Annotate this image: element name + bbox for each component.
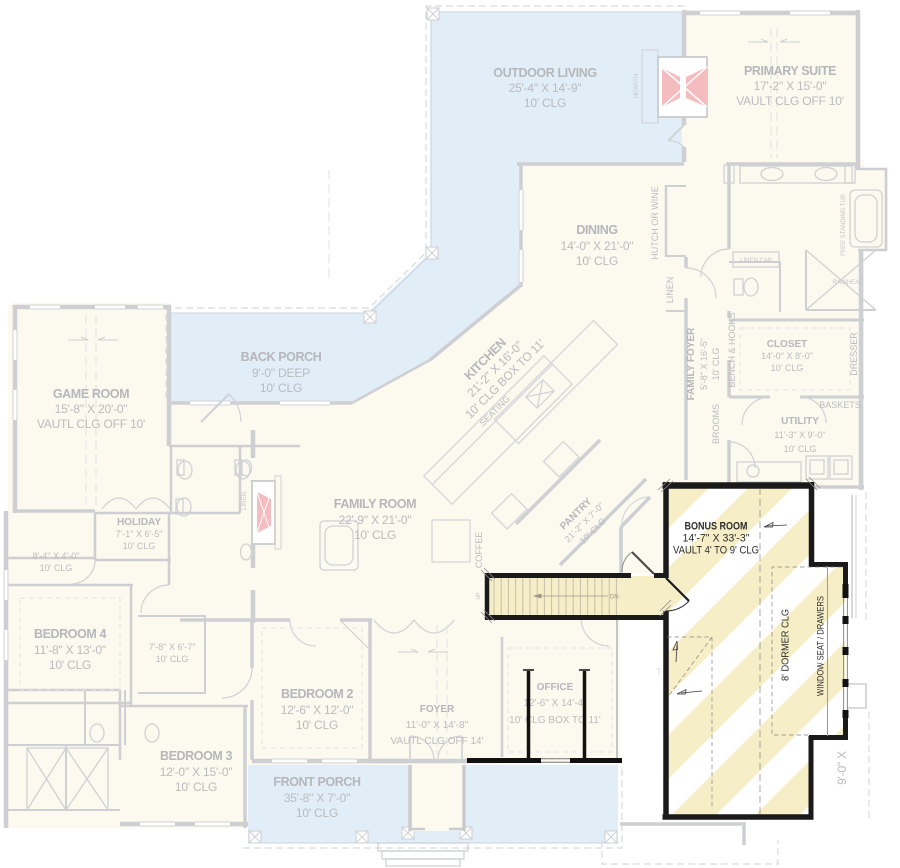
svg-text:DINING: DINING <box>576 223 617 237</box>
svg-text:8' DORMER CLG: 8' DORMER CLG <box>781 609 792 681</box>
svg-text:BROOMS: BROOMS <box>711 404 721 444</box>
svg-text:25'-4" X 14'-9": 25'-4" X 14'-9" <box>509 81 582 95</box>
svg-text:9'-0" X: 9'-0" X <box>835 751 849 785</box>
svg-text:17'-2" X 15'-0": 17'-2" X 15'-0" <box>754 79 827 93</box>
svg-text:10' CLG: 10' CLG <box>784 444 817 454</box>
svg-text:FREE STANDING TUB: FREE STANDING TUB <box>841 194 847 256</box>
svg-text:11'-8" X 13'-0": 11'-8" X 13'-0" <box>34 643 106 657</box>
svg-text:12'-6" X 14'-4": 12'-6" X 14'-4" <box>523 698 587 709</box>
svg-text:10' CLG: 10' CLG <box>296 718 338 732</box>
svg-text:BENCH & HOOKS: BENCH & HOOKS <box>727 312 737 387</box>
svg-text:10' CLG: 10' CLG <box>524 96 566 110</box>
svg-text:8'-4" X 4'-0": 8'-4" X 4'-0" <box>33 551 80 561</box>
svg-text:10' CLG: 10' CLG <box>175 780 217 794</box>
svg-text:DN: DN <box>610 595 619 601</box>
svg-text:LINEN: LINEN <box>665 277 675 304</box>
svg-text:RAINHEAD: RAINHEAD <box>832 280 864 286</box>
svg-text:T: T <box>656 667 662 677</box>
svg-text:HOLIDAY: HOLIDAY <box>117 517 161 528</box>
svg-text:10' CLG: 10' CLG <box>40 563 73 573</box>
svg-text:10' CLG: 10' CLG <box>296 806 338 820</box>
svg-text:FOYER: FOYER <box>420 704 455 715</box>
svg-text:BONUS ROOM: BONUS ROOM <box>685 521 748 533</box>
svg-text:35'-8" X 7'-0": 35'-8" X 7'-0" <box>284 791 350 805</box>
svg-text:FAMILY ROOM: FAMILY ROOM <box>334 497 416 511</box>
svg-text:VAUTL CLG OFF 10': VAUTL CLG OFF 10' <box>37 417 145 431</box>
svg-text:10' CLG: 10' CLG <box>711 348 721 381</box>
svg-text:22'-9" X 21'-0": 22'-9" X 21'-0" <box>339 513 412 527</box>
svg-text:10' CLG: 10' CLG <box>49 658 91 672</box>
svg-text:12'-6" X 12'-0": 12'-6" X 12'-0" <box>281 703 354 717</box>
svg-text:FRONT PORCH: FRONT PORCH <box>273 775 361 789</box>
svg-text:11'-0" X 14'-8": 11'-0" X 14'-8" <box>406 720 469 731</box>
svg-text:VAULT CLG OFF 10': VAULT CLG OFF 10' <box>736 94 844 108</box>
svg-text:BEDROOM 3: BEDROOM 3 <box>160 749 233 763</box>
svg-text:WINDOW SEAT / DRAWERS: WINDOW SEAT / DRAWERS <box>816 596 826 696</box>
svg-text:9'-0" DEEP: 9'-0" DEEP <box>252 366 310 380</box>
svg-text:HUTCH OR WINE: HUTCH OR WINE <box>650 186 660 260</box>
svg-text:VAULT 4' TO 9' CLG: VAULT 4' TO 9' CLG <box>673 545 759 557</box>
svg-text:BASKETS: BASKETS <box>819 400 861 410</box>
svg-text:14'-7" X 33'-3": 14'-7" X 33'-3" <box>683 533 750 545</box>
svg-text:COFFEE: COFFEE <box>474 532 484 569</box>
svg-text:10' CLG: 10' CLG <box>354 528 396 542</box>
svg-text:HEARTH: HEARTH <box>634 74 640 99</box>
svg-text:7'-8" X 6'-7": 7'-8" X 6'-7" <box>149 642 196 652</box>
svg-text:PRIMARY SUITE: PRIMARY SUITE <box>744 64 836 78</box>
svg-text:10' CLG: 10' CLG <box>156 654 189 664</box>
svg-text:OFFICE: OFFICE <box>537 682 574 693</box>
svg-text:7'-1" X 6'-5": 7'-1" X 6'-5" <box>116 529 163 539</box>
svg-text:DRESSER: DRESSER <box>849 332 859 376</box>
svg-text:14'-0" X 8'-0": 14'-0" X 8'-0" <box>761 351 813 361</box>
svg-text:10' CLG: 10' CLG <box>576 254 618 268</box>
svg-text:GAME ROOM: GAME ROOM <box>53 387 129 401</box>
svg-text:FAMILY FOYER: FAMILY FOYER <box>686 327 697 401</box>
svg-text:BEDROOM 2: BEDROOM 2 <box>281 687 354 701</box>
svg-text:LINEN CAB: LINEN CAB <box>740 258 772 264</box>
svg-text:5'-8" X 16'-5": 5'-8" X 16'-5" <box>699 338 709 390</box>
svg-text:LINEN: LINEN <box>242 492 248 510</box>
svg-text:BACK PORCH: BACK PORCH <box>241 350 322 364</box>
svg-text:10' CLG: 10' CLG <box>771 363 804 373</box>
svg-text:CLOSET: CLOSET <box>767 339 808 350</box>
svg-text:10' CLG: 10' CLG <box>260 381 302 395</box>
svg-text:11'-3" X 9'-0": 11'-3" X 9'-0" <box>774 430 825 440</box>
svg-text:VAUTL CLG OFF 14': VAUTL CLG OFF 14' <box>390 736 483 747</box>
svg-text:10' CLG BOX TO 11': 10' CLG BOX TO 11' <box>509 715 601 726</box>
svg-text:12'-0" X 15'-0": 12'-0" X 15'-0" <box>160 765 233 779</box>
svg-text:14'-0" X 21'-0": 14'-0" X 21'-0" <box>561 239 634 253</box>
svg-text:OUTDOOR LIVING: OUTDOOR LIVING <box>493 66 596 80</box>
svg-text:BEDROOM 4: BEDROOM 4 <box>34 627 107 641</box>
svg-text:UP: UP <box>476 592 482 600</box>
svg-text:10' CLG: 10' CLG <box>123 541 156 551</box>
svg-text:UTILITY: UTILITY <box>781 416 819 427</box>
svg-text:15'-8" X 20'-0": 15'-8" X 20'-0" <box>55 402 128 416</box>
